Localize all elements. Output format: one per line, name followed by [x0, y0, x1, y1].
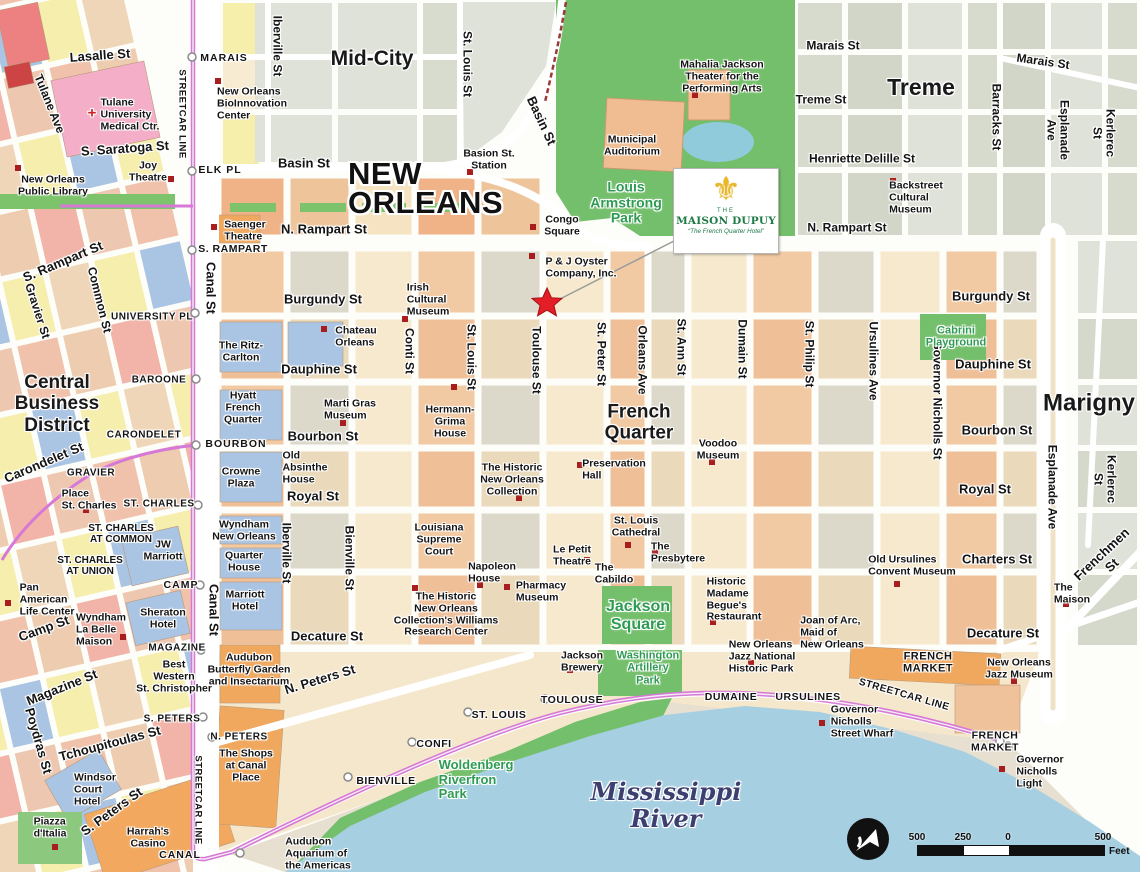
fq-block: [482, 452, 540, 507]
poi-marker: [52, 844, 58, 850]
fq-block: [881, 386, 940, 445]
canal-top-block: [223, 3, 259, 54]
fq-block: [291, 252, 349, 313]
station-dot: [1004, 742, 1012, 750]
fq-block: [754, 320, 812, 379]
fq-block: [754, 452, 812, 507]
fq-block: [222, 252, 284, 313]
poi-marker: [402, 316, 408, 322]
fq-block: [356, 252, 412, 313]
fq-block: [881, 576, 940, 645]
midcity-block: [338, 115, 417, 162]
station-dot: [197, 646, 205, 654]
station-dot: [192, 375, 200, 383]
landmark-block: [955, 685, 1020, 733]
fq-block: [754, 514, 812, 569]
landmark-block: [220, 452, 282, 502]
treme-block: [798, 3, 842, 49]
poi-marker: [215, 78, 221, 84]
landmark-block: [220, 390, 282, 440]
station-dot: [196, 581, 204, 589]
poi-marker: [1011, 678, 1017, 684]
poi-marker: [412, 585, 418, 591]
fq-block: [419, 320, 475, 379]
fleur-de-lis-icon: ⚜: [674, 171, 778, 207]
fq-block: [482, 576, 540, 645]
maison-dupuy-logo-card: ⚜ THE MAISON DUPUY “The French Quarter H…: [673, 168, 779, 254]
poi-marker: [709, 459, 715, 465]
landmark-block: [220, 548, 282, 578]
station-dot: [194, 501, 202, 509]
treme-block: [798, 55, 842, 109]
landmark-block: [288, 322, 343, 366]
fq-block: [692, 452, 747, 507]
landmark-block: [220, 645, 280, 703]
station-dot: [188, 246, 196, 254]
midcity-block: [338, 60, 417, 109]
fq-block: [692, 386, 747, 445]
station-dot: [541, 695, 549, 703]
fq-block: [819, 252, 874, 313]
marigny-block: [1078, 241, 1137, 313]
poi-marker: [211, 224, 217, 230]
poi-marker: [577, 462, 583, 468]
poi-marker: [999, 766, 1005, 772]
fq-block: [754, 252, 812, 313]
fq-block: [652, 514, 685, 569]
fq-block: [947, 386, 997, 445]
poi-marker: [652, 550, 658, 556]
treme-block: [1003, 173, 1045, 235]
fq-block: [692, 252, 747, 313]
landmark-block: [220, 582, 282, 630]
canal-top-block: [223, 115, 259, 165]
hotel-name: MAISON DUPUY: [674, 216, 778, 227]
fq-block: [547, 386, 604, 445]
hotel-tagline: “The French Quarter Hotel”: [674, 229, 778, 235]
fq-block: [1004, 514, 1037, 569]
landmark-block: [220, 516, 282, 544]
poi-marker: [120, 634, 126, 640]
poi-marker: [83, 507, 89, 513]
station-dot: [199, 713, 207, 721]
treme-block: [1108, 173, 1137, 235]
fq-block: [1004, 452, 1037, 507]
poi-marker: [748, 660, 754, 666]
midcity-block: [423, 3, 457, 54]
fq-block: [881, 452, 940, 507]
poi-marker: [477, 582, 483, 588]
treme-block: [968, 173, 997, 235]
midcity-block: [338, 3, 417, 54]
cabrini-playground-park: [920, 314, 986, 360]
fq-block: [611, 386, 645, 445]
scale-seg-white: [964, 846, 1009, 855]
midcity-block: [423, 60, 457, 109]
poi-marker: [168, 176, 174, 182]
scale-unit: Feet: [1109, 846, 1130, 857]
fq-block: [947, 576, 997, 645]
treme-block: [908, 173, 962, 235]
fq-block: [291, 452, 349, 507]
fq-block: [947, 252, 997, 313]
treme-block: [798, 173, 842, 235]
fq-block: [419, 514, 475, 569]
city-title: NEWORLEANS: [348, 160, 503, 217]
fq-block: [881, 252, 940, 313]
fq-block: [482, 320, 540, 379]
fq-block: [611, 252, 645, 313]
fq-block: [611, 320, 645, 379]
station-dot: [236, 849, 244, 857]
poi-marker: [567, 667, 573, 673]
station-dot: [344, 773, 352, 781]
park-pond: [682, 122, 754, 162]
fq-block: [692, 576, 747, 645]
fq-block: [754, 386, 812, 445]
hotel-the: THE: [674, 208, 778, 214]
fq-block: [419, 576, 475, 645]
poi-marker: [819, 720, 825, 726]
median-green: [300, 203, 346, 212]
fq-block: [819, 576, 874, 645]
treme-block: [1051, 115, 1102, 167]
fq-block: [419, 386, 475, 445]
station-dot: [408, 738, 416, 746]
poi-marker: [530, 224, 536, 230]
scale-tick-3: 500: [1095, 832, 1112, 843]
station-dot: [191, 309, 199, 317]
poi-marker: [340, 420, 346, 426]
fq-block: [652, 452, 685, 507]
fq-block: [291, 514, 349, 569]
treme-block: [848, 55, 902, 109]
fq-block: [419, 452, 475, 507]
fq-block: [547, 452, 604, 507]
treme-block: [848, 115, 902, 167]
scale-track: [917, 845, 1105, 856]
fq-block: [356, 514, 412, 569]
fq-block: [881, 514, 940, 569]
poi-marker: [625, 542, 631, 548]
fq-block: [754, 576, 812, 645]
poi-marker: [584, 557, 590, 563]
fq-block: [1004, 576, 1037, 645]
canal-top-block: [223, 60, 259, 109]
poi-marker: [516, 495, 522, 501]
fq-block: [819, 452, 874, 507]
poi-marker: [15, 165, 21, 171]
treme-block: [1108, 3, 1137, 49]
poi-marker: [692, 92, 698, 98]
poi-marker: [321, 326, 327, 332]
poi-marker: [890, 178, 896, 184]
treme-block: [1003, 115, 1045, 167]
fq-block: [947, 514, 997, 569]
fq-block: [819, 386, 874, 445]
station-dot: [192, 441, 200, 449]
fq-block: [611, 452, 645, 507]
station-dot: [208, 733, 216, 741]
treme-block: [1051, 3, 1102, 49]
fq-block: [692, 514, 747, 569]
scale-seg-black: [1009, 846, 1104, 855]
city-title-line2: ORLEANS: [348, 185, 503, 220]
fq-block: [1004, 386, 1037, 445]
poi-marker: [1063, 601, 1069, 607]
fq-block: [547, 320, 604, 379]
poi-marker: [529, 253, 535, 259]
marigny-block: [1078, 319, 1137, 379]
landmark-block: [220, 322, 282, 372]
treme-block: [1003, 3, 1045, 49]
scale-tick-0: 500: [909, 832, 926, 843]
treme-block: [798, 115, 842, 167]
fq-block: [611, 514, 645, 569]
treme-block: [968, 115, 997, 167]
treme-block: [1108, 115, 1137, 167]
map-canvas: [0, 0, 1140, 872]
fq-block: [482, 386, 540, 445]
treme-block: [908, 55, 962, 109]
fq-block: [1004, 252, 1037, 313]
jackson-square-park: [602, 586, 672, 644]
midcity-block: [423, 115, 457, 162]
poi-marker: [504, 584, 510, 590]
scale-bar: 5002500500 Feet: [905, 832, 1137, 866]
fq-block: [356, 452, 412, 507]
north-arrow-icon: [845, 816, 891, 867]
treme-block: [968, 3, 997, 49]
fq-block: [1004, 320, 1037, 379]
fq-block: [652, 386, 685, 445]
treme-block: [908, 3, 962, 49]
piazza-ditalia-park: [18, 812, 82, 864]
poi-marker: [451, 384, 457, 390]
washington-artillery-park: [598, 650, 682, 696]
scale-tick-1: 250: [955, 832, 972, 843]
treme-block: [1051, 55, 1102, 109]
station-dot: [188, 167, 196, 175]
poi-marker: [802, 642, 808, 648]
station-dot: [996, 737, 1004, 745]
fq-block: [819, 320, 874, 379]
fq-block: [291, 576, 349, 645]
municipal-auditorium-building: [603, 98, 685, 172]
new-orleans-french-quarter-map: NEWORLEANS ⚜ THE MAISON DUPUY “The Frenc…: [0, 0, 1140, 872]
scale-tick-2: 0: [1005, 832, 1011, 843]
fq-block: [652, 320, 685, 379]
fq-block: [692, 320, 747, 379]
median-green: [230, 203, 276, 212]
marigny-block: [1078, 385, 1137, 445]
poi-marker: [5, 600, 11, 606]
fq-block: [652, 252, 685, 313]
fq-block: [947, 452, 997, 507]
treme-block: [968, 55, 997, 109]
fq-block: [547, 514, 604, 569]
fq-block: [482, 252, 540, 313]
poi-marker: [894, 581, 900, 587]
fq-block: [482, 514, 540, 569]
fq-block: [356, 576, 412, 645]
poi-marker: [710, 619, 716, 625]
fq-block: [547, 576, 604, 645]
marigny-block: [1078, 451, 1137, 507]
treme-block: [848, 3, 902, 49]
scale-seg-black: [918, 846, 964, 855]
fq-block: [356, 320, 412, 379]
fq-block: [819, 514, 874, 569]
fq-block: [291, 386, 349, 445]
treme-block: [908, 115, 962, 167]
fq-block: [419, 252, 475, 313]
station-dot: [464, 708, 472, 716]
fq-block: [356, 386, 412, 445]
station-dot: [188, 53, 196, 61]
